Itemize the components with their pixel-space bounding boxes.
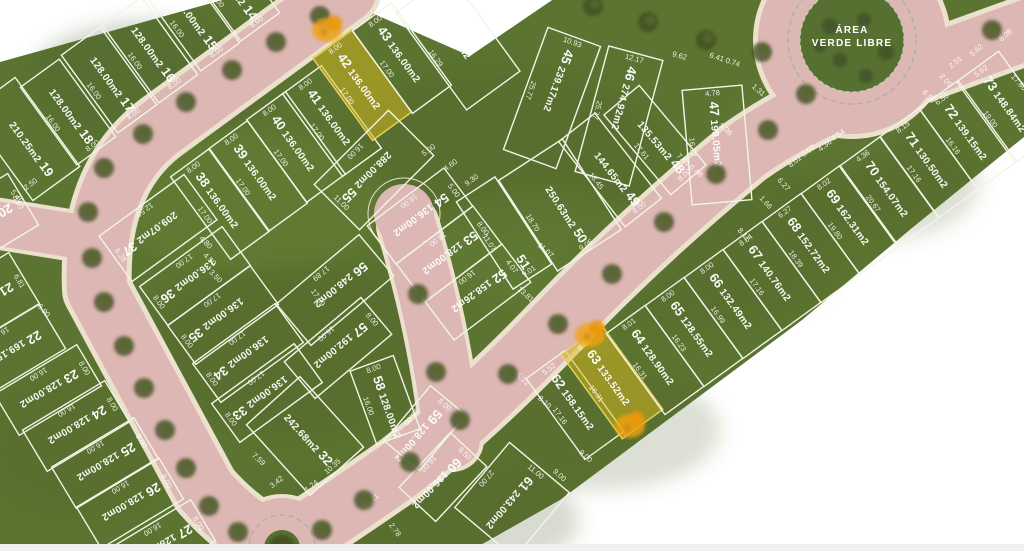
tree-icon — [222, 60, 242, 80]
tree-icon — [654, 212, 674, 232]
green-area-label-line2: VERDE LIBRE — [812, 38, 892, 49]
tree-icon — [602, 264, 622, 284]
tree-icon — [133, 124, 153, 144]
tree-icon — [982, 20, 1002, 40]
tree-icon — [450, 410, 470, 430]
tree-icon — [752, 42, 772, 62]
tree-icon — [400, 452, 420, 472]
tree-icon — [408, 284, 428, 304]
tree-icon — [796, 84, 816, 104]
tree-icon — [696, 30, 716, 50]
tree-icon — [114, 336, 134, 356]
tree-icon — [78, 202, 98, 222]
tree-icon — [758, 120, 778, 140]
tree-icon — [548, 314, 568, 334]
tree-icon — [228, 522, 248, 542]
tree-icon — [94, 158, 114, 178]
plat-map-canvas: ÁREA VERDE LIBRE 14128.00m28.0016.001512… — [0, 0, 1024, 551]
subdivision-plat-map: ÁREA VERDE LIBRE 14128.00m28.0016.001512… — [0, 0, 1024, 551]
tree-icon — [426, 362, 446, 382]
tree-icon — [706, 164, 726, 184]
tree-icon — [199, 496, 219, 516]
lot-47[interactable]: 47199.05m24.7816.17 — [682, 85, 752, 205]
tree-icon — [354, 490, 374, 510]
tree-icon — [94, 292, 114, 312]
tree-icon — [134, 378, 154, 398]
tree-icon — [498, 364, 518, 384]
tree-icon — [176, 92, 196, 112]
lot-number: 47 — [706, 101, 722, 117]
tree-icon — [82, 248, 102, 268]
bottom-edge-bar — [0, 544, 1024, 551]
lot-width-dim: 4.78 — [705, 88, 721, 98]
tree-icon — [155, 420, 175, 440]
tree-icon — [266, 32, 286, 52]
tree-icon — [638, 12, 658, 32]
green-area-label-line1: ÁREA — [835, 23, 868, 36]
tree-icon — [176, 458, 196, 478]
tree-icon — [312, 520, 332, 540]
